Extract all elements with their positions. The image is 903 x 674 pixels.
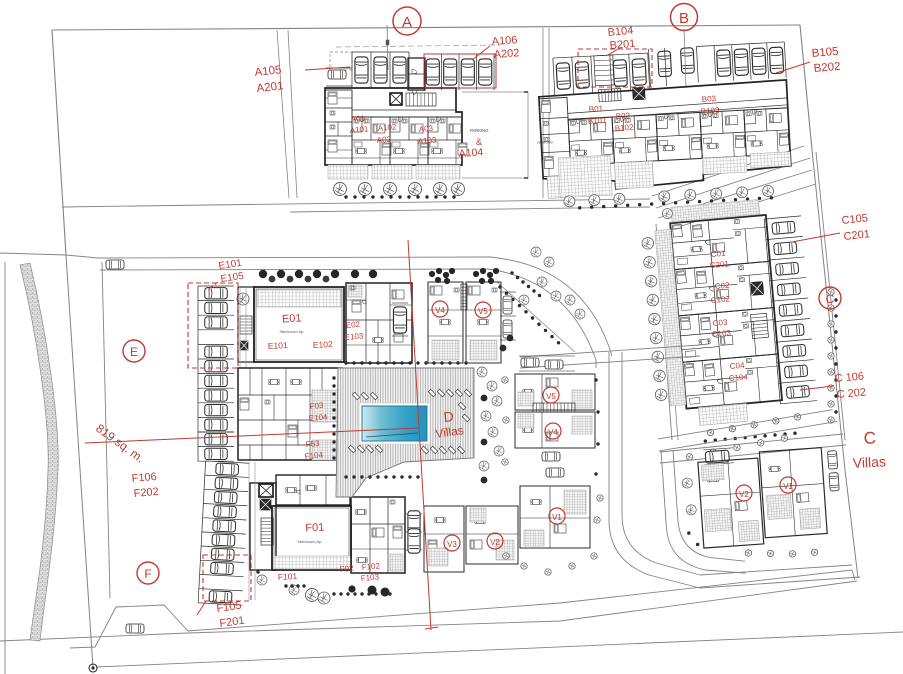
svg-text:V2: V2 <box>739 490 749 499</box>
svg-text:B103: B103 <box>701 106 721 116</box>
svg-text:B102: B102 <box>615 123 635 133</box>
svg-text:F104: F104 <box>304 450 323 461</box>
svg-text:V4: V4 <box>548 428 558 437</box>
svg-text:B101: B101 <box>588 116 608 126</box>
svg-text:E101: E101 <box>268 340 289 351</box>
svg-text:B202: B202 <box>813 61 841 75</box>
svg-text:F01: F01 <box>305 522 325 535</box>
svg-text:A01: A01 <box>350 114 366 124</box>
svg-text:A106: A106 <box>491 34 517 48</box>
svg-text:C: C <box>826 292 835 306</box>
svg-text:E02: E02 <box>345 320 361 330</box>
svg-text:B03: B03 <box>702 94 717 104</box>
svg-text:F202: F202 <box>133 486 159 500</box>
svg-text:B105: B105 <box>811 46 839 60</box>
svg-text:D: D <box>443 408 454 425</box>
svg-text:V5: V5 <box>546 392 556 401</box>
svg-text:V2: V2 <box>490 538 500 547</box>
svg-text:C201: C201 <box>709 259 729 270</box>
svg-text:C: C <box>863 428 876 448</box>
svg-text:B104: B104 <box>607 25 634 39</box>
svg-text:C102: C102 <box>710 294 730 305</box>
svg-text:A02: A02 <box>376 135 392 145</box>
svg-text:E01: E01 <box>282 312 302 325</box>
svg-text:3bedroom Ap.: 3bedroom Ap. <box>298 539 323 544</box>
svg-text:V3: V3 <box>447 540 457 549</box>
svg-text:F02: F02 <box>339 564 354 574</box>
svg-text:E: E <box>130 345 138 359</box>
svg-text:F03: F03 <box>309 401 324 411</box>
svg-text:C103: C103 <box>711 328 731 339</box>
svg-text:Villas: Villas <box>852 453 886 471</box>
svg-text:A104: A104 <box>458 146 483 160</box>
svg-text:B201: B201 <box>609 38 636 52</box>
svg-text:PARKING: PARKING <box>537 140 553 145</box>
svg-text:E104: E104 <box>308 412 328 423</box>
svg-text:C01: C01 <box>710 249 726 259</box>
svg-text:A102: A102 <box>377 122 397 133</box>
svg-text:F106: F106 <box>131 471 157 485</box>
svg-text:C 202: C 202 <box>836 386 866 401</box>
svg-text:F: F <box>144 567 151 581</box>
svg-text:E102: E102 <box>313 339 334 350</box>
svg-text:V4: V4 <box>435 306 445 315</box>
svg-text:A103: A103 <box>417 135 437 146</box>
svg-text:A202: A202 <box>493 47 519 61</box>
svg-text:B02: B02 <box>616 111 631 121</box>
svg-text:E103: E103 <box>344 331 364 342</box>
svg-text:B: B <box>679 10 689 27</box>
svg-text:V1: V1 <box>552 513 562 522</box>
svg-text:C02: C02 <box>714 281 730 291</box>
svg-text:V1: V1 <box>783 482 793 491</box>
svg-text:3bedroom Ap.: 3bedroom Ap. <box>280 329 305 334</box>
svg-text:A101: A101 <box>349 124 369 135</box>
svg-text:F101: F101 <box>278 571 298 582</box>
svg-text:A03: A03 <box>418 124 434 134</box>
svg-text:F53: F53 <box>305 439 320 449</box>
svg-text:C 106: C 106 <box>834 370 864 385</box>
svg-text:F103: F103 <box>360 572 379 583</box>
svg-text:PARKING: PARKING <box>470 128 489 133</box>
svg-text:C04: C04 <box>729 361 745 371</box>
svg-text:V5: V5 <box>478 307 488 316</box>
svg-text:B01: B01 <box>589 104 604 114</box>
svg-text:C03: C03 <box>712 318 728 328</box>
svg-text:C104: C104 <box>728 372 748 383</box>
svg-text:F102: F102 <box>361 561 380 572</box>
svg-text:A: A <box>402 14 412 31</box>
